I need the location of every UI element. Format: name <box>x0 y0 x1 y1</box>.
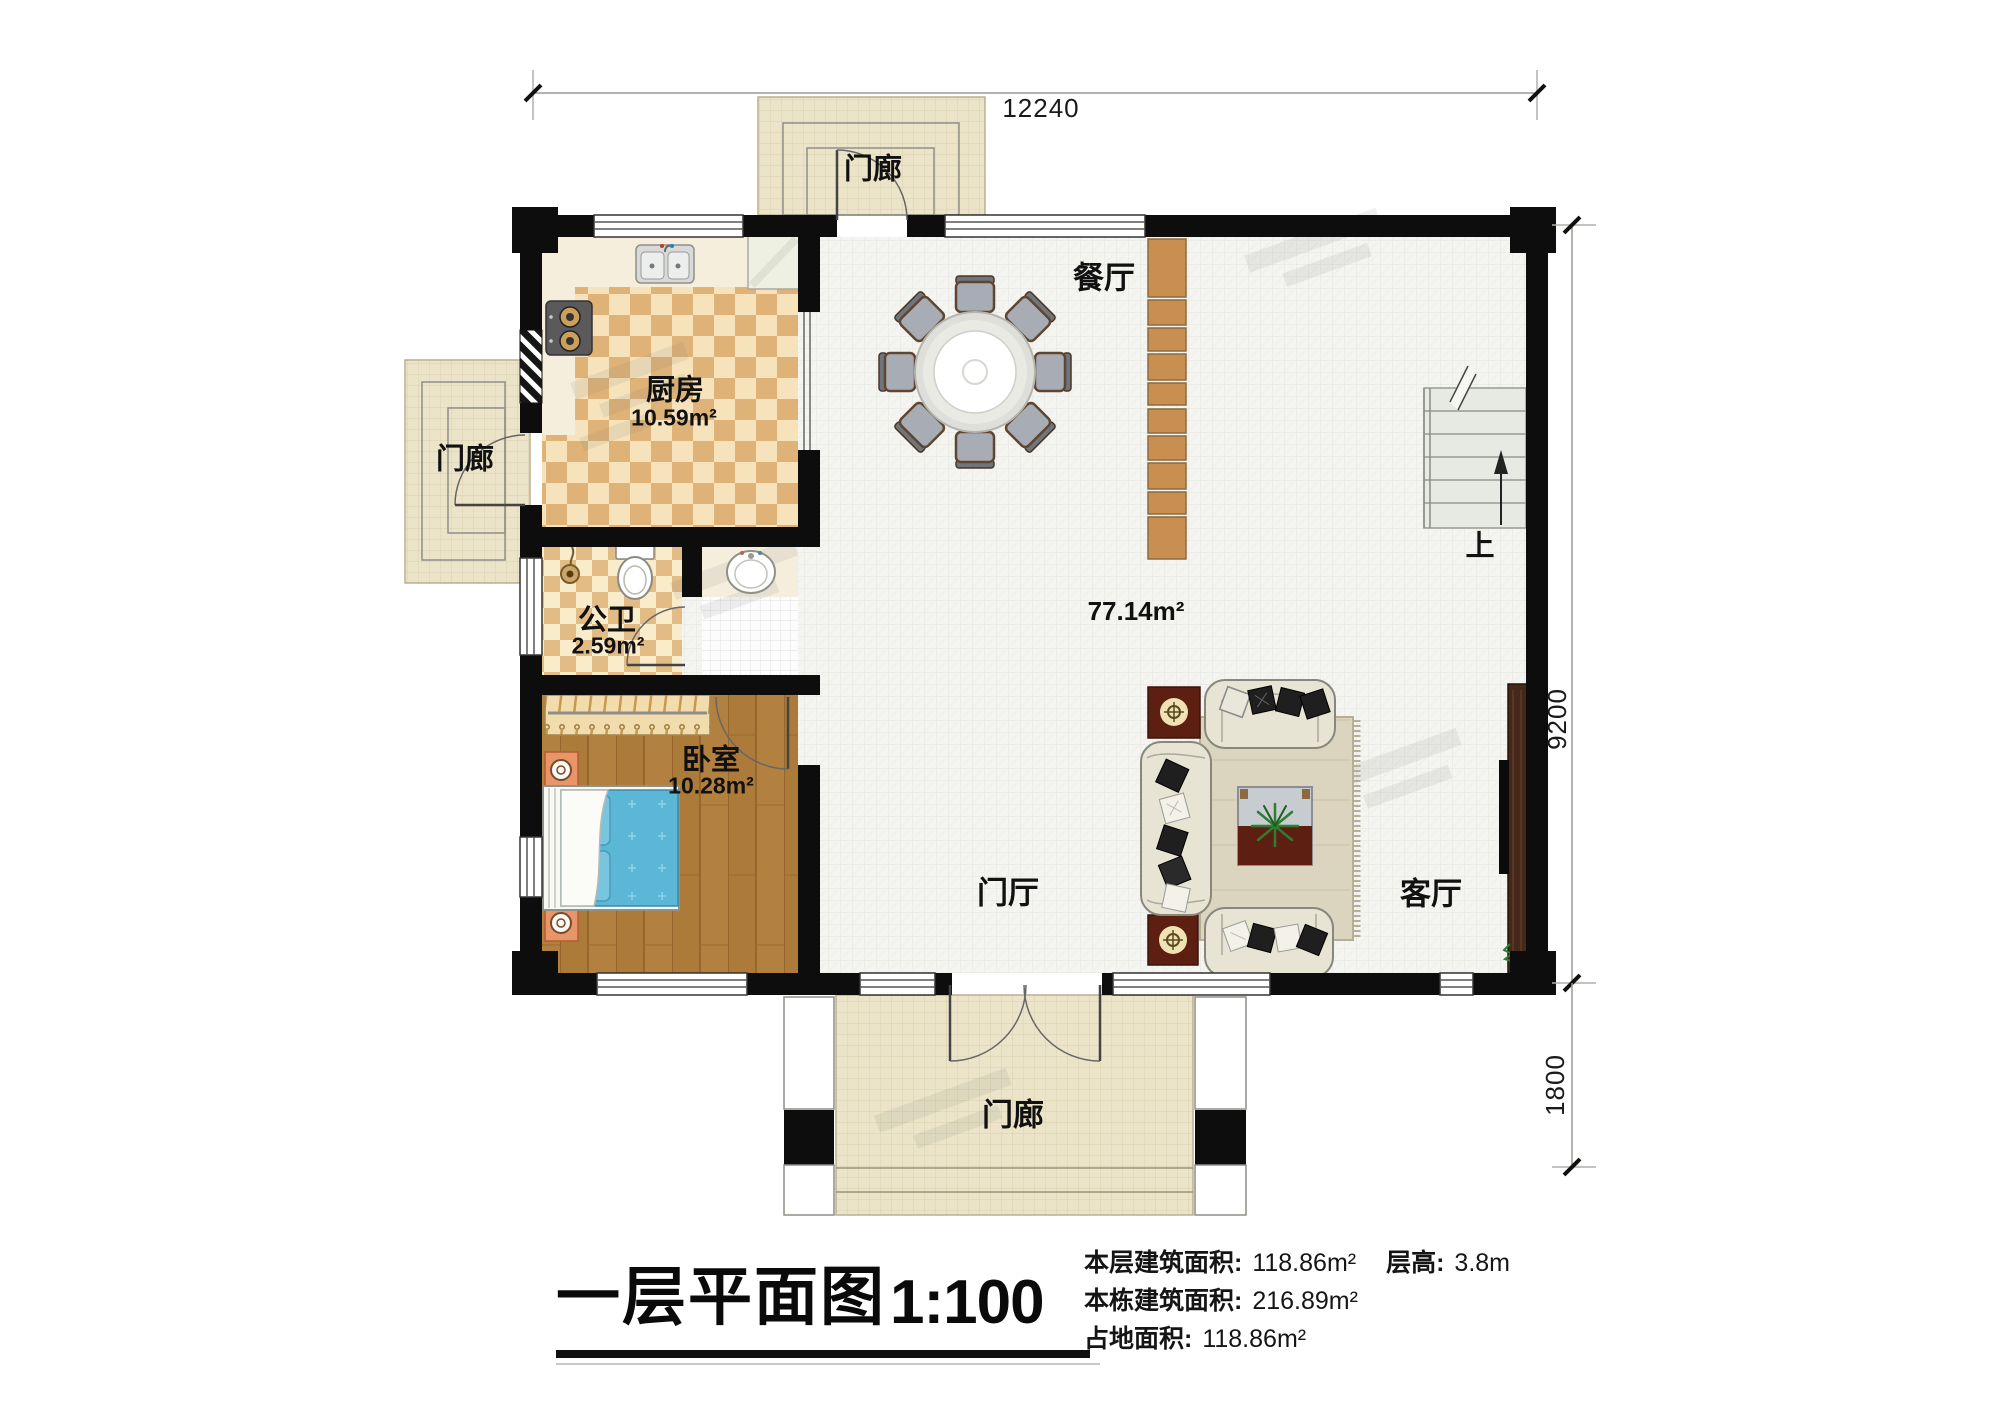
stairs-up-label: 上 <box>1465 533 1494 562</box>
stats-block: 本层建筑面积: 118.86m² 层高: 3.8m 本栋建筑面积: 216.89… <box>1084 1243 1510 1357</box>
sideboard-cabinet <box>1148 239 1186 559</box>
sofa-top <box>1205 680 1335 748</box>
room-area-bedroom: 10.28m² <box>668 775 754 798</box>
bed <box>543 786 679 910</box>
title-underline <box>556 1350 1090 1358</box>
side-table-lamp <box>1148 915 1198 965</box>
room-label-porch-top: 门廊 <box>844 156 902 185</box>
stairs <box>1424 366 1526 528</box>
dining-table-set <box>879 276 1071 468</box>
washbasin <box>727 551 775 593</box>
room-label-porch-left: 门廊 <box>436 446 494 475</box>
stat-value: 118.86m² <box>1202 1325 1306 1354</box>
dimension-height-main: 9200 <box>1544 688 1570 750</box>
window-bottom-hall <box>860 973 935 995</box>
drawing-scale: 1:100 <box>890 1267 1044 1338</box>
room-label-living: 客厅 <box>1400 879 1462 910</box>
stat-label: 本层建筑面积: <box>1084 1243 1242 1279</box>
room-area-bathroom: 2.59m² <box>572 635 645 658</box>
room-area-kitchen: 10.59m² <box>631 407 717 430</box>
room-label-bedroom: 卧室 <box>682 747 740 776</box>
sofa-bottom <box>1205 908 1333 977</box>
coffee-table <box>1238 787 1312 865</box>
stats-row-floor-area: 本层建筑面积: 118.86m² 层高: 3.8m <box>1084 1243 1510 1281</box>
stats-row-footprint-area: 占地面积: 118.86m² <box>1084 1319 1510 1357</box>
room-label-bathroom: 公卫 <box>578 607 636 636</box>
area-open-space: 77.14m² <box>1088 598 1185 624</box>
room-label-hall: 门厅 <box>977 878 1039 909</box>
dimension-width-total: 12240 <box>1002 95 1079 121</box>
dimension-height-porch: 1800 <box>1542 1054 1568 1116</box>
stat-label-floor-height: 层高: <box>1386 1243 1444 1279</box>
page-title: 一层平面图 <box>556 1246 886 1338</box>
window-left-bathroom <box>520 558 542 655</box>
sofa-left <box>1141 742 1211 915</box>
stove <box>546 301 592 355</box>
room-label-kitchen: 厨房 <box>646 377 704 406</box>
window-top-kitchen <box>594 215 743 237</box>
room-label-dining: 餐厅 <box>1073 263 1135 294</box>
stat-value: 216.89m² <box>1252 1287 1358 1316</box>
window-bottom-living <box>1113 973 1270 995</box>
window-bottom-living-2 <box>1440 973 1473 995</box>
window-bottom-bedroom <box>597 973 747 995</box>
wardrobe <box>545 695 710 735</box>
room-label-porch-bottom: 门廊 <box>982 1100 1044 1131</box>
stat-label: 占地面积: <box>1084 1319 1192 1355</box>
stats-row-building-area: 本栋建筑面积: 216.89m² <box>1084 1281 1510 1319</box>
stat-label: 本栋建筑面积: <box>1084 1281 1242 1317</box>
window-top-dining <box>945 215 1145 237</box>
nightstand <box>545 752 578 788</box>
title-underline-thin <box>556 1363 1100 1365</box>
kitchen-sink <box>636 244 694 283</box>
vent-left-kitchen <box>520 330 542 403</box>
title-block: 一层平面图 1:100 <box>556 1246 1100 1365</box>
stat-value-floor-height: 3.8m <box>1454 1249 1510 1278</box>
toilet <box>616 545 654 599</box>
floor-plan-page: 12240 9200 1800 门廊 门廊 门廊 餐厅 厨房 10.59m² 公… <box>0 0 2000 1413</box>
stat-value: 118.86m² <box>1252 1249 1356 1278</box>
floor-plan-drawing <box>0 0 2000 1413</box>
side-table-lamp <box>1148 687 1200 738</box>
window-left-bedroom <box>520 837 542 897</box>
